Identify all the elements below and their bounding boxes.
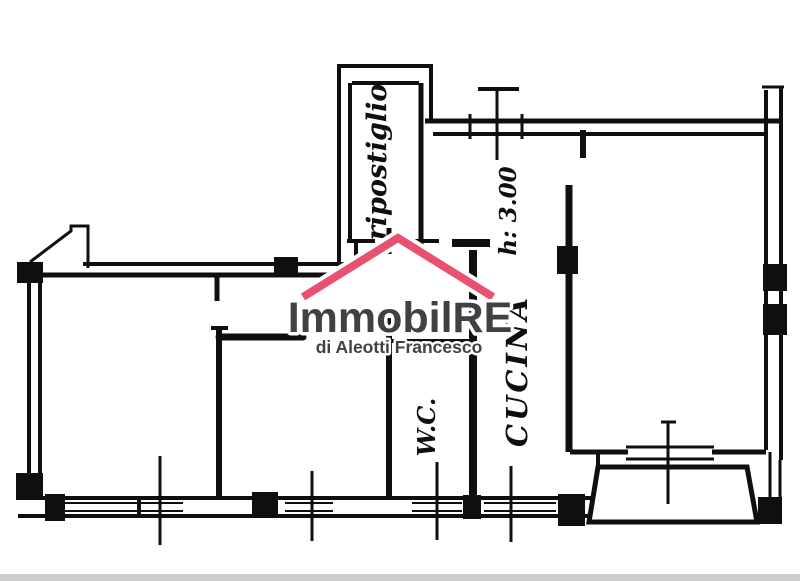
label-ceiling-height: h: 3.00	[495, 166, 522, 255]
entrance-door-swing	[30, 226, 88, 268]
floorplan-document: ripostiglio h: 3.00 W.C. CUCINA ImmobilR…	[0, 0, 800, 581]
brand-subtitle: di Aleotti Francesco	[316, 337, 483, 357]
balcony-terrace	[589, 467, 757, 522]
scan-artifact-line	[0, 574, 800, 581]
label-wc: W.C.	[412, 398, 441, 457]
agency-watermark: ImmobilRE di Aleotti Francesco	[288, 238, 513, 357]
brand-name: ImmobilRE	[288, 294, 513, 342]
label-storage-room: ripostiglio	[362, 84, 393, 241]
floorplan-svg: ripostiglio h: 3.00 W.C. CUCINA ImmobilR…	[0, 0, 800, 581]
wall-pillars	[16, 246, 787, 526]
